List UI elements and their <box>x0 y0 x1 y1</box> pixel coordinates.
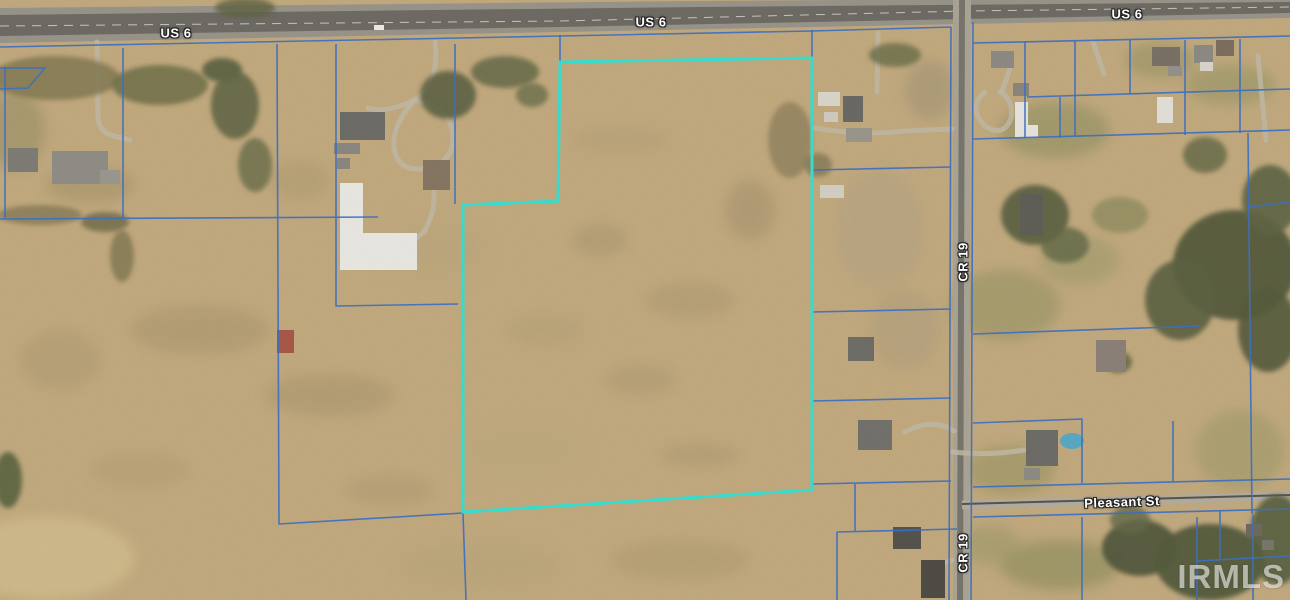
aerial-parcel-map[interactable]: US 6 US 6 US 6 CR 19 CR 19 Pleasant St I… <box>0 0 1290 600</box>
road-label-us6-west: US 6 <box>161 26 192 41</box>
road-label-us6-east: US 6 <box>1112 7 1143 22</box>
watermark-irmls: IRMLS <box>1177 558 1285 596</box>
road-label-cr19-lower: CR 19 <box>956 533 971 572</box>
road-label-cr19-upper: CR 19 <box>956 242 971 281</box>
road-label-us6-center: US 6 <box>636 15 667 30</box>
road-label-pleasant-st: Pleasant St <box>1084 493 1160 511</box>
